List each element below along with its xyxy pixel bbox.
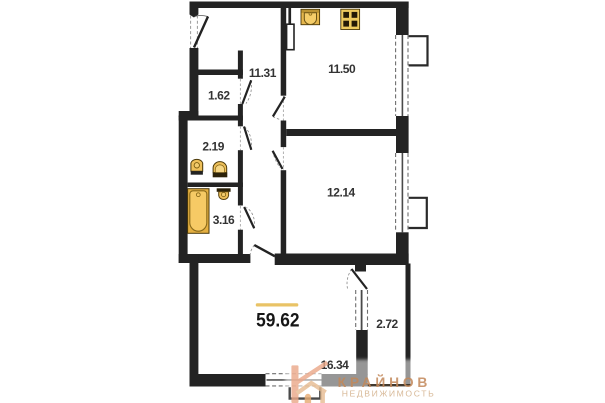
svg-text:НЕДВИЖИМОСТЬ: НЕДВИЖИМОСТЬ xyxy=(342,389,436,399)
svg-text:3.16: 3.16 xyxy=(213,213,235,227)
svg-text:2.72: 2.72 xyxy=(376,317,398,331)
svg-text:11.31: 11.31 xyxy=(249,66,277,80)
svg-text:12.14: 12.14 xyxy=(327,185,356,199)
svg-text:КРАЙНОВ: КРАЙНОВ xyxy=(338,373,432,390)
svg-text:11.50: 11.50 xyxy=(328,62,356,76)
svg-text:1.62: 1.62 xyxy=(208,88,230,102)
svg-text:2.19: 2.19 xyxy=(202,139,224,153)
svg-text:59.62: 59.62 xyxy=(256,310,299,332)
